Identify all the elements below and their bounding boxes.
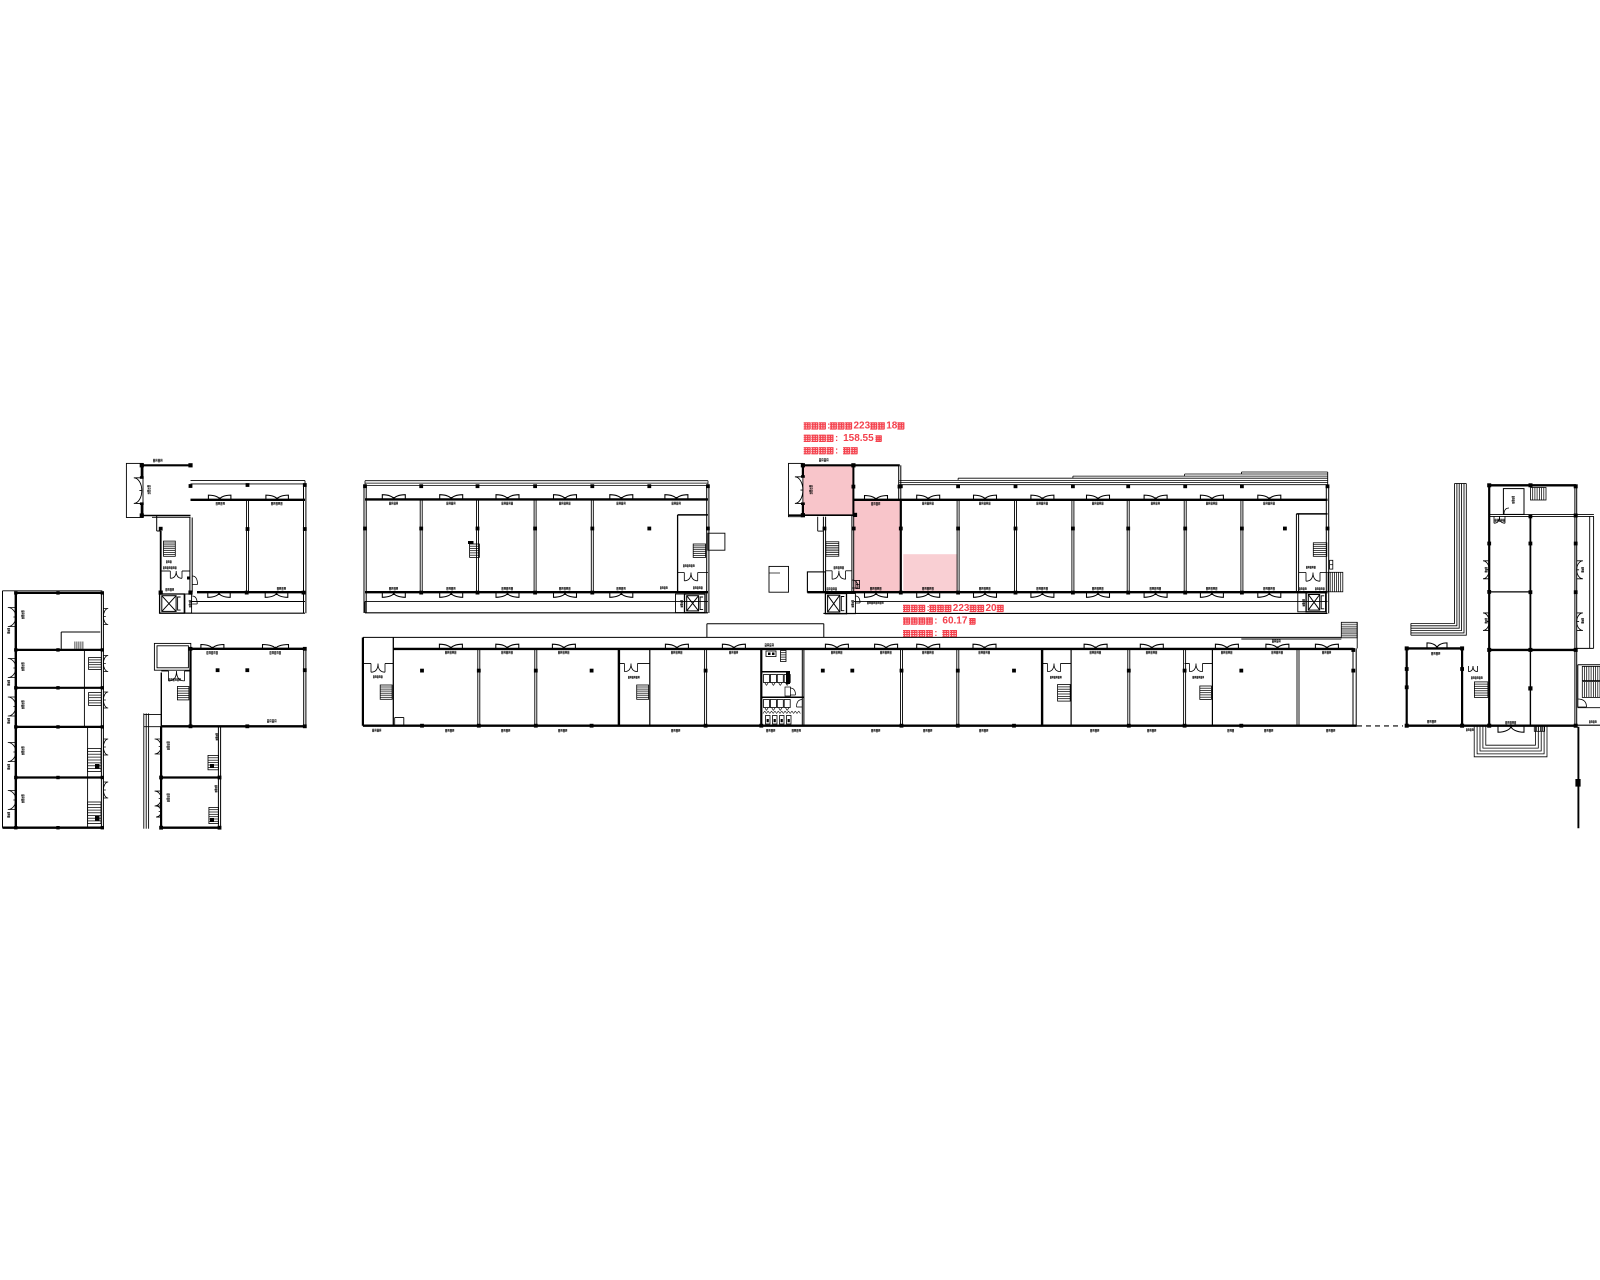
svg-text:18: 18 xyxy=(886,421,898,432)
svg-text:158.55: 158.55 xyxy=(843,433,874,444)
svg-text::: : xyxy=(927,603,930,613)
svg-text:223: 223 xyxy=(854,421,871,432)
svg-text::: : xyxy=(835,433,838,443)
svg-text:223: 223 xyxy=(953,603,970,614)
svg-text::: : xyxy=(934,628,937,638)
svg-text:60.17: 60.17 xyxy=(942,616,967,627)
svg-text::: : xyxy=(934,616,937,626)
svg-text:20: 20 xyxy=(986,603,998,614)
svg-text::: : xyxy=(827,421,830,431)
svg-text::: : xyxy=(835,445,838,455)
